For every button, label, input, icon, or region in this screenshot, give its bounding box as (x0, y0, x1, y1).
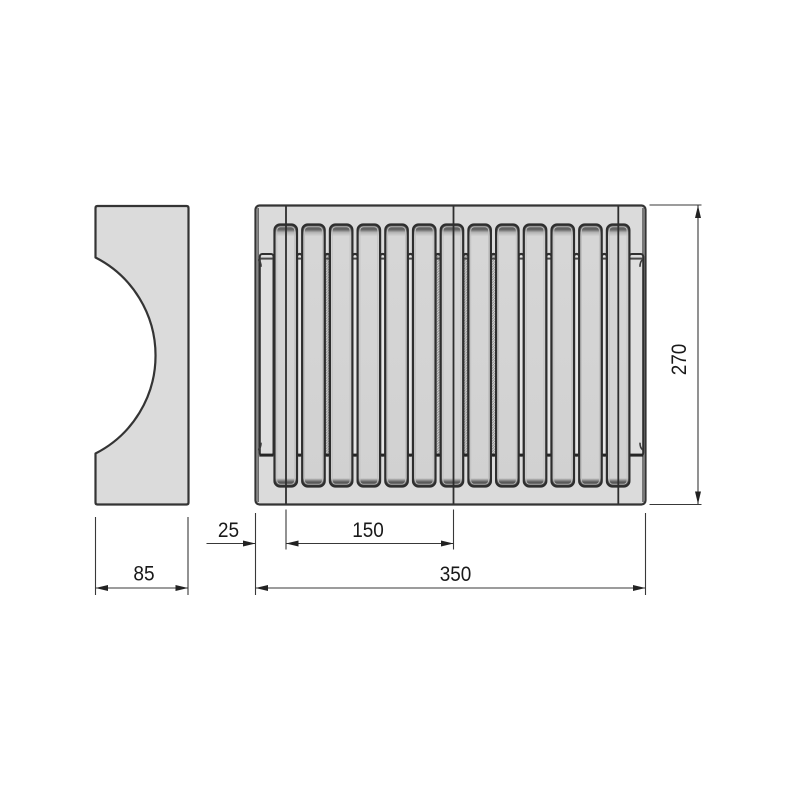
svg-text:150: 150 (352, 519, 384, 542)
svg-text:25: 25 (218, 519, 239, 542)
svg-text:270: 270 (668, 344, 691, 376)
svg-text:350: 350 (440, 563, 472, 586)
svg-text:85: 85 (133, 563, 154, 586)
